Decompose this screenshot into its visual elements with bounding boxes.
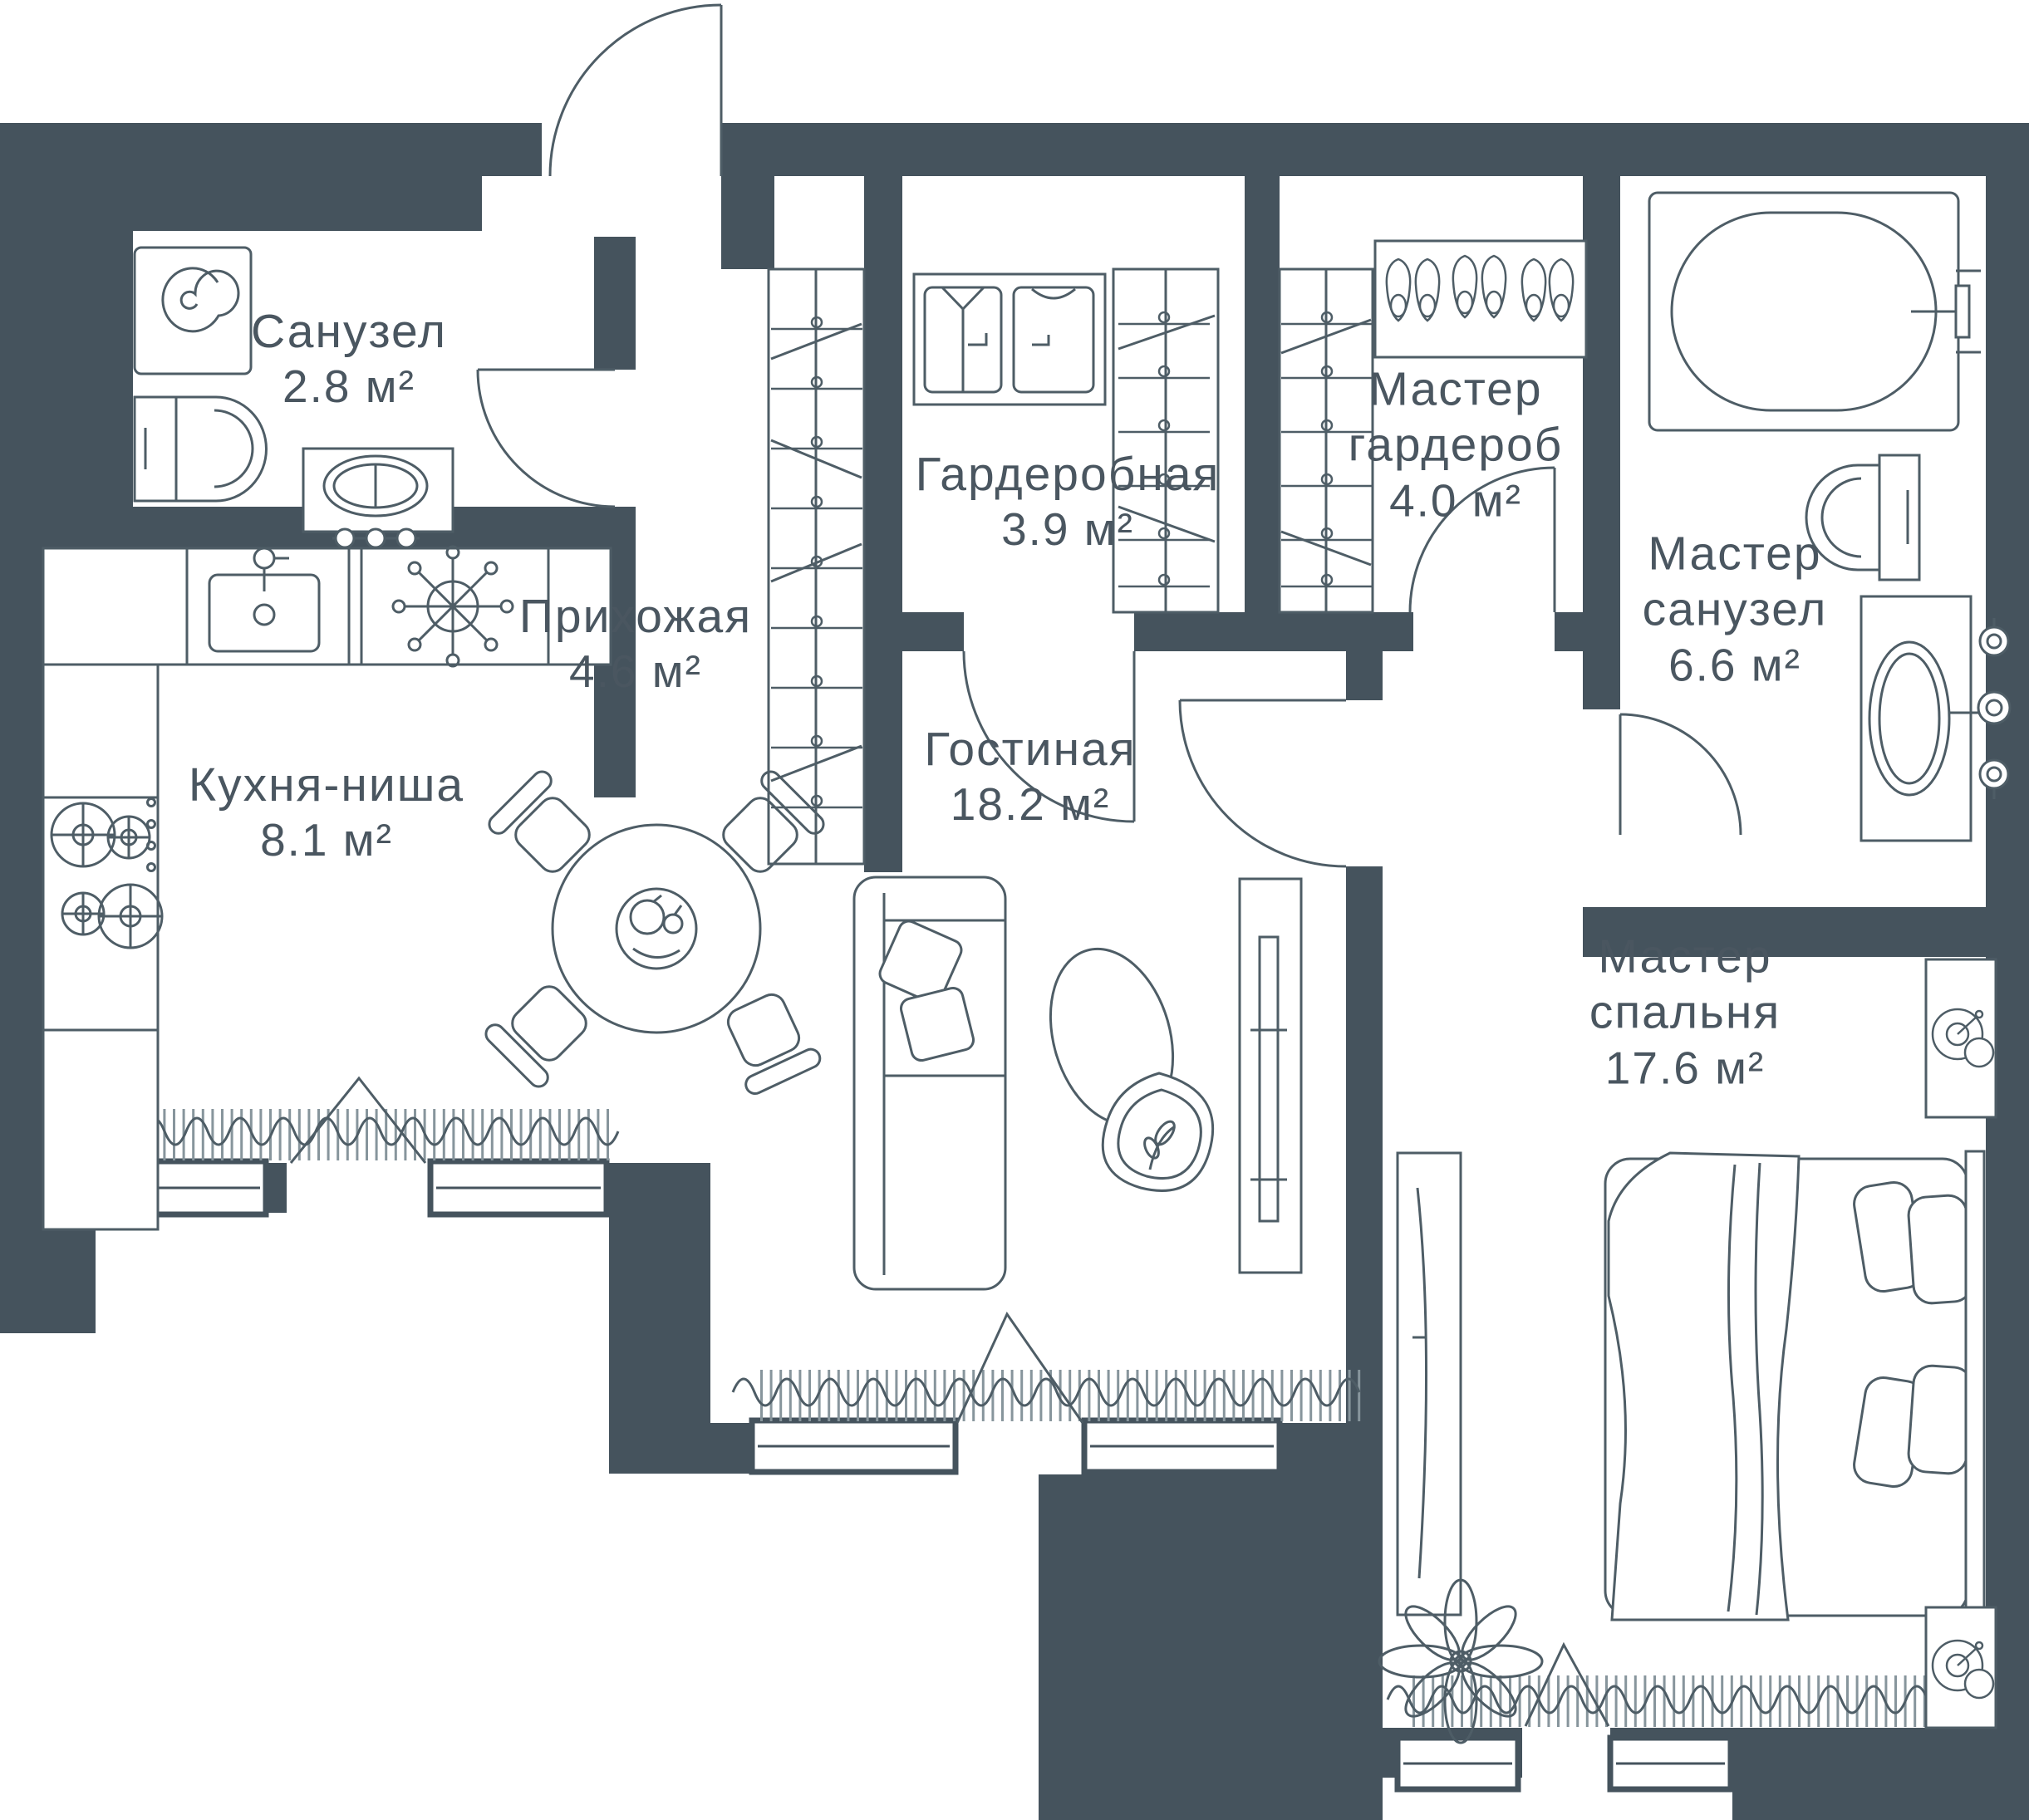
floor-plan-drawing <box>0 0 2029 1820</box>
room-area: 3.9 м² <box>916 503 1221 557</box>
dining-table <box>553 825 760 1033</box>
double-bed <box>1605 1151 1984 1623</box>
room-label-master-garderob: Мастер гардероб 4.0 м² <box>1290 361 1622 527</box>
room-area: 17.6 м² <box>1513 1041 1857 1095</box>
room-area: 6.6 м² <box>1556 638 1914 692</box>
room-area: 4.6 м² <box>519 645 752 699</box>
room-label-gostinaya: Гостиная 18.2 м² <box>924 722 1136 832</box>
extractor-fan-icon <box>393 547 513 666</box>
hallway-closet <box>769 269 864 864</box>
room-name: Кухня-ниша <box>189 758 464 813</box>
room-name: Гостиная <box>924 722 1136 778</box>
room-name: Мастер санузел <box>1556 526 1914 638</box>
room-label-garderobnaya: Гардеробная 3.9 м² <box>916 447 1221 557</box>
room-area: 4.0 м² <box>1290 473 1622 527</box>
living-room-furniture <box>854 877 1301 1289</box>
room-name: Прихожая <box>519 589 752 645</box>
sink-icon <box>303 449 453 547</box>
room-name: Мастер спальня <box>1513 929 1857 1041</box>
room-label-prihozhaya: Прихожая 4.6 м² <box>519 589 752 699</box>
room-name: Санузел <box>251 304 447 360</box>
room-label-sanuzel: Санузел 2.8 м² <box>251 304 447 414</box>
bed-blanket <box>1609 1153 1799 1620</box>
toilet-icon <box>135 397 266 501</box>
room-area: 18.2 м² <box>924 778 1136 832</box>
bedroom-door <box>1180 700 1346 866</box>
master-bathroom-fixtures <box>1649 193 2010 841</box>
balcony-door-living <box>957 1314 1083 1423</box>
room-area: 8.1 м² <box>189 813 464 867</box>
bathtub-icon <box>1649 193 1981 430</box>
dining-set <box>482 768 827 1096</box>
floor-plan: Санузел 2.8 м² Прихожая 4.6 м² Гардеробн… <box>0 0 2029 1820</box>
room-label-master-spalnya: Мастер спальня 17.6 м² <box>1513 929 1857 1094</box>
wardrobe-room <box>914 269 1218 612</box>
nightstand <box>1926 959 1996 1117</box>
bathroom-door <box>478 370 615 507</box>
bedroom-wardrobe <box>1398 1153 1461 1615</box>
washing-machine-icon <box>135 248 251 374</box>
tv-console <box>1240 879 1301 1273</box>
entrance-door <box>550 5 721 176</box>
nightstand <box>1926 1607 1996 1728</box>
room-name: Мастер гардероб <box>1290 361 1622 473</box>
room-label-kuhnya: Кухня-ниша 8.1 м² <box>189 758 464 867</box>
coffee-tables <box>1031 935 1213 1191</box>
master-bathroom-door <box>1620 714 1741 835</box>
sofa <box>854 877 1005 1289</box>
room-area: 2.8 м² <box>251 360 447 414</box>
room-name: Гардеробная <box>916 447 1221 503</box>
room-label-master-sanuzel: Мастер санузел 6.6 м² <box>1556 526 1914 691</box>
